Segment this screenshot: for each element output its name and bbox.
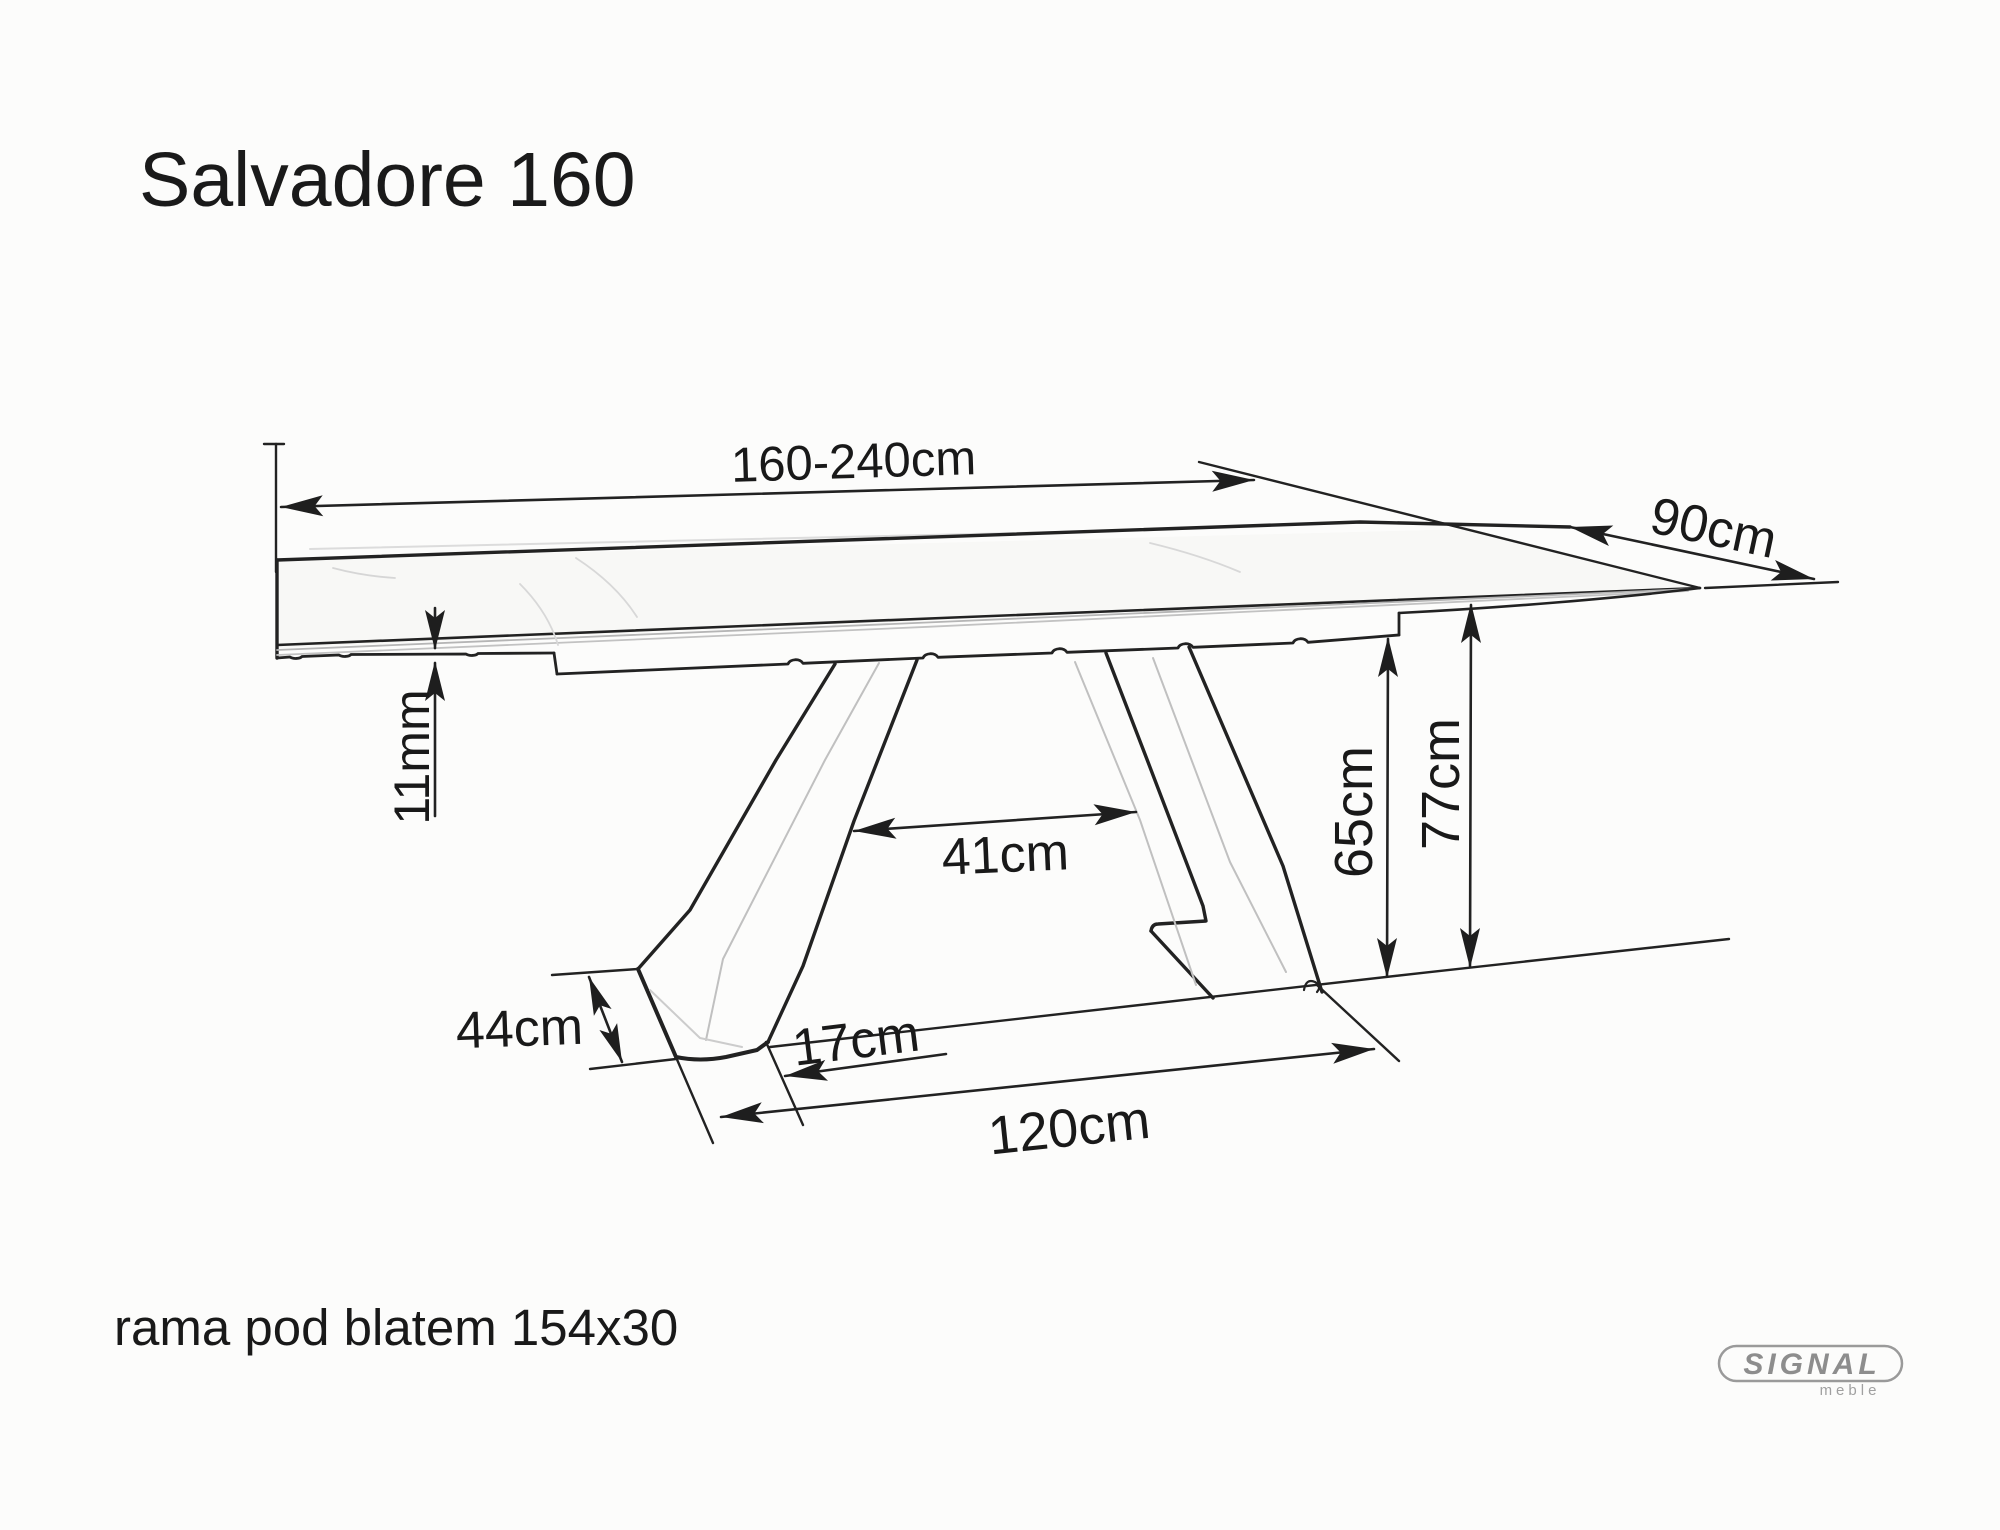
- svg-text:77cm: 77cm: [1411, 718, 1471, 850]
- svg-text:SIGNAL: SIGNAL: [1743, 1348, 1880, 1381]
- svg-text:meble: meble: [1820, 1382, 1881, 1399]
- svg-text:Salvadore 160: Salvadore 160: [139, 137, 636, 223]
- svg-text:41cm: 41cm: [940, 823, 1070, 886]
- svg-text:11mm: 11mm: [384, 689, 440, 824]
- svg-text:65cm: 65cm: [1324, 746, 1384, 878]
- svg-text:rama pod blatem 154x30: rama pod blatem 154x30: [114, 1299, 678, 1356]
- svg-text:44cm: 44cm: [455, 998, 584, 1060]
- svg-text:160-240cm: 160-240cm: [730, 431, 977, 493]
